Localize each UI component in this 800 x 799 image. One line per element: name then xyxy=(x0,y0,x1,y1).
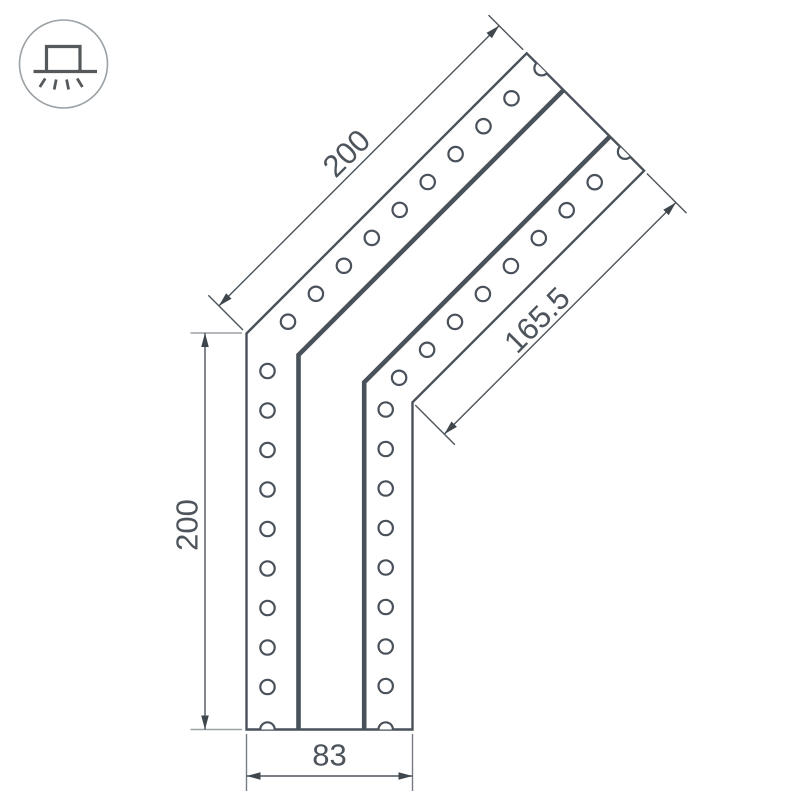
extension-line xyxy=(415,405,455,445)
mounting-hole xyxy=(281,315,295,329)
mounting-hole xyxy=(504,91,518,105)
arrowhead xyxy=(201,716,209,730)
mounting-hole xyxy=(309,287,323,301)
recessed-downlight-icon xyxy=(34,47,98,90)
light-ray xyxy=(77,79,82,88)
mounting-hole xyxy=(421,175,435,189)
mounting-hole xyxy=(379,600,393,614)
mounting-hole xyxy=(337,259,351,273)
mounting-hole xyxy=(560,203,574,217)
mounting-hole xyxy=(379,402,393,416)
profile-outline xyxy=(247,53,645,729)
mounting-hole xyxy=(420,343,434,357)
edge-notch xyxy=(618,147,630,159)
mounting-hole xyxy=(448,315,462,329)
mounting-hole xyxy=(476,119,490,133)
dimension-value-vertical: 200 xyxy=(170,499,205,551)
mounting-hole xyxy=(379,442,393,456)
arrowhead xyxy=(247,772,261,780)
mounting-hole xyxy=(448,147,462,161)
arrowhead xyxy=(201,333,209,347)
mounting-hole xyxy=(260,403,274,417)
mounting-hole xyxy=(504,259,518,273)
mounting-hole xyxy=(379,481,393,495)
downlight-housing xyxy=(47,47,81,72)
profile-body xyxy=(247,53,645,729)
dimension-value-diagonal: 200 xyxy=(316,123,377,184)
mounting-hole xyxy=(379,639,393,653)
extension-line xyxy=(647,174,687,214)
luminaire-type-badge xyxy=(20,20,108,108)
mounting-hole xyxy=(260,482,274,496)
mounting-hole xyxy=(260,522,274,536)
drawing-canvas: 200 165.5 200 83 xyxy=(0,0,800,799)
mounting-hole xyxy=(392,371,406,385)
dimension-vertical-length: 200 xyxy=(170,333,243,730)
light-ray xyxy=(67,80,69,90)
mounting-hole xyxy=(393,203,407,217)
dimension-bottom-width: 83 xyxy=(247,734,413,791)
dimension-value-bottom-width: 83 xyxy=(312,738,346,773)
mounting-hole xyxy=(588,175,602,189)
mounting-hole xyxy=(260,601,274,615)
mounting-hole xyxy=(379,560,393,574)
light-ray xyxy=(40,79,45,88)
mounting-hole xyxy=(260,680,274,694)
badge-circle xyxy=(20,20,108,108)
mounting-hole xyxy=(260,640,274,654)
arrowhead xyxy=(399,772,413,780)
mounting-hole xyxy=(476,287,490,301)
mounting-hole xyxy=(379,521,393,535)
light-ray xyxy=(54,80,56,90)
mounting-hole xyxy=(260,443,274,457)
edge-notch xyxy=(379,722,393,729)
edge-notch xyxy=(260,722,274,729)
mounting-hole xyxy=(532,231,546,245)
mounting-hole xyxy=(260,561,274,575)
edge-notch xyxy=(534,63,546,75)
technical-drawing: 200 165.5 200 83 xyxy=(0,0,800,799)
mounting-hole xyxy=(379,679,393,693)
mounting-hole xyxy=(260,364,274,378)
mounting-hole xyxy=(365,231,379,245)
